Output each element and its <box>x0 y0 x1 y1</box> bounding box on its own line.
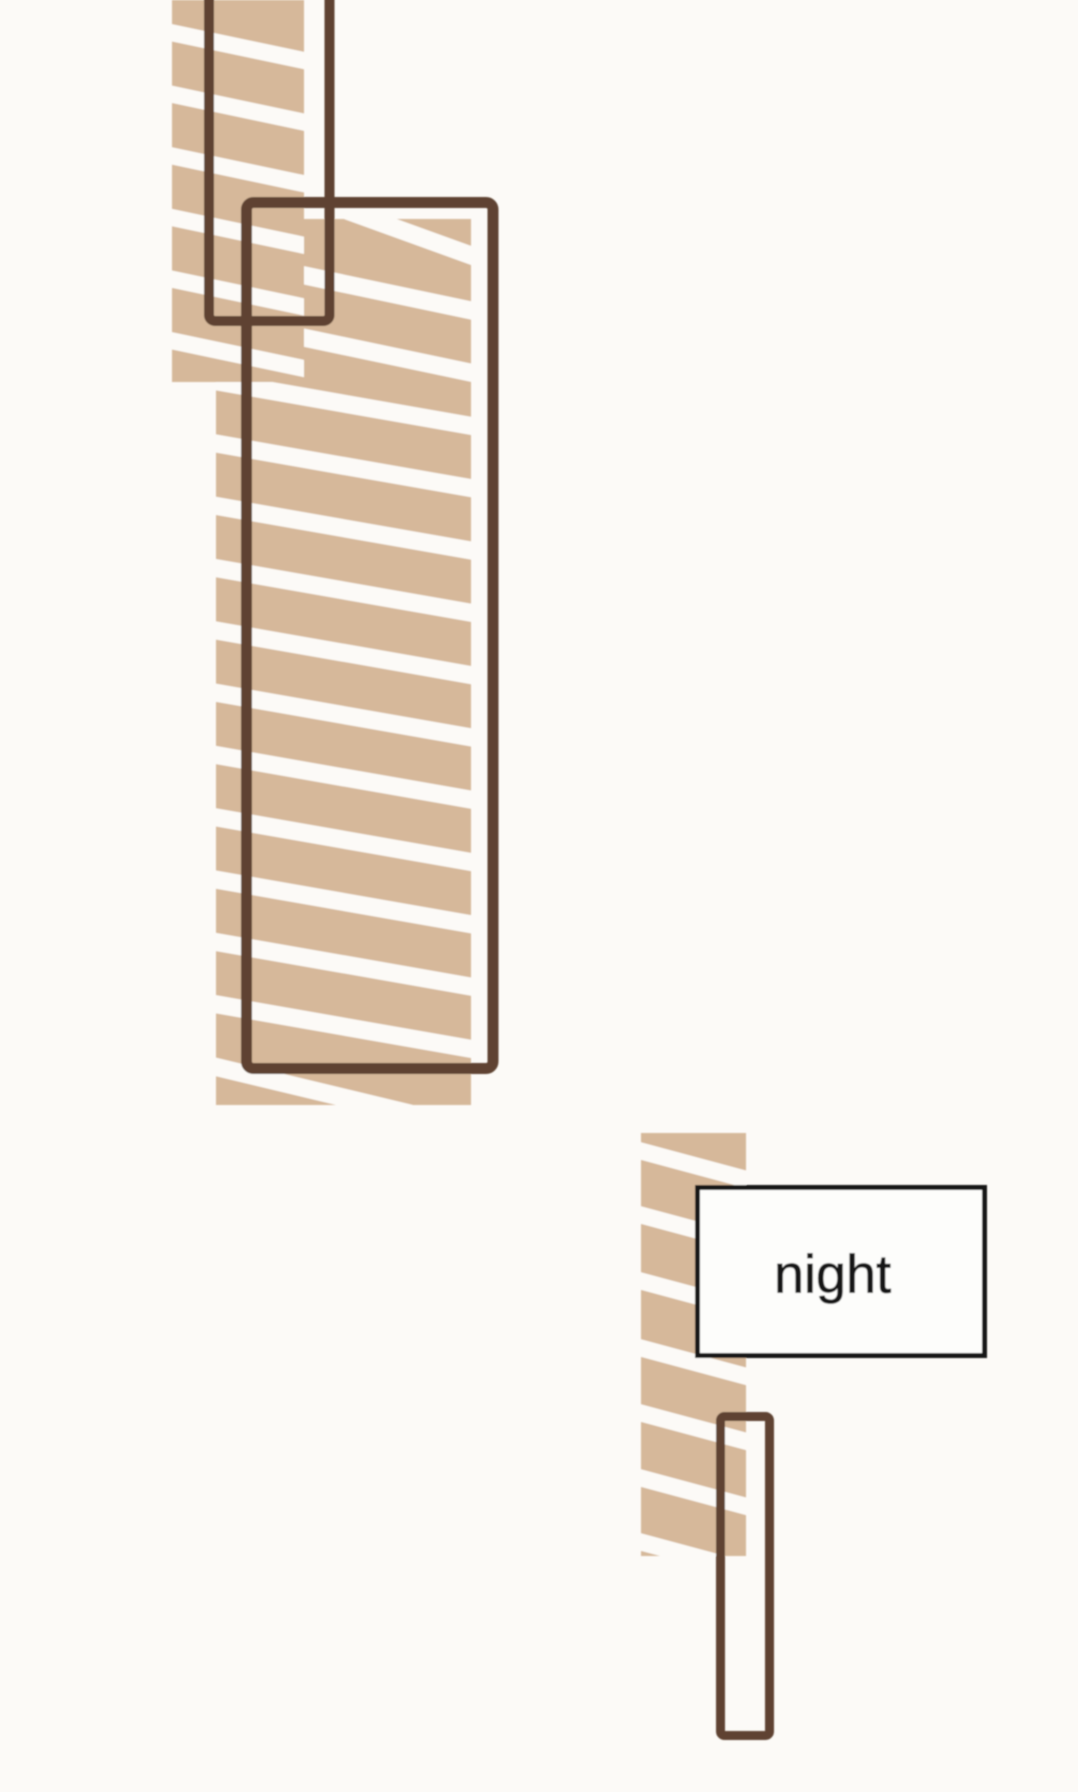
svg-text:night: night <box>774 1245 891 1305</box>
